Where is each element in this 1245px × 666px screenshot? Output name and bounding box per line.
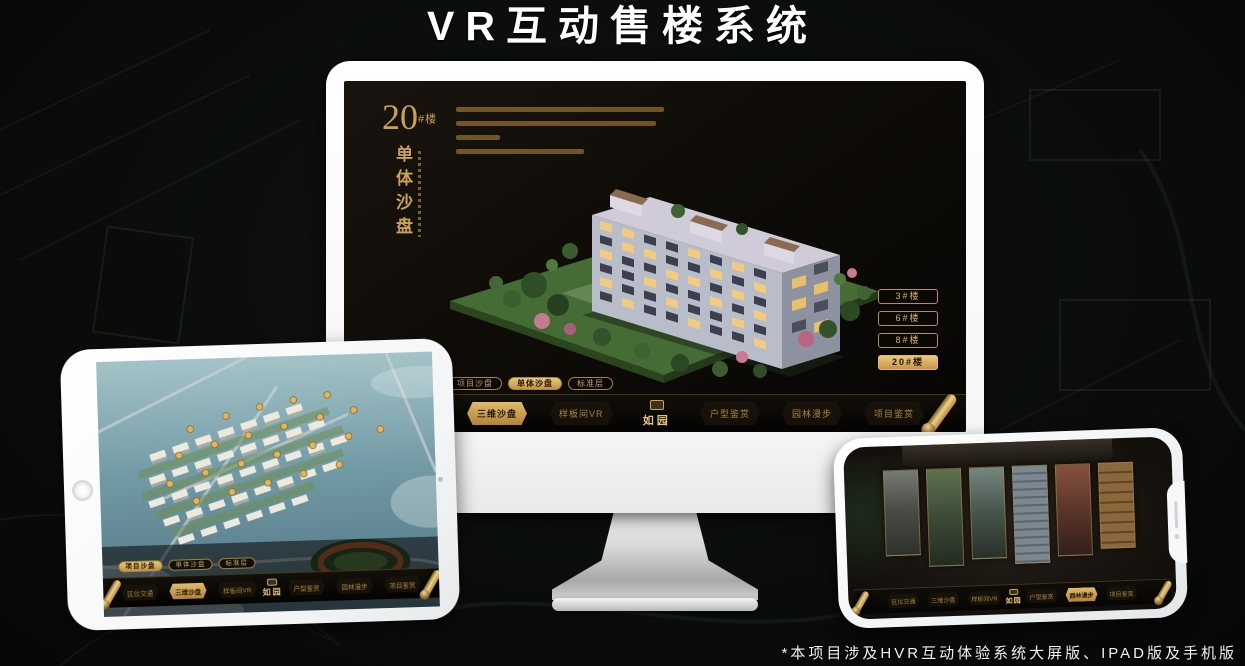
scroll-menu-icon-left[interactable] <box>100 578 122 608</box>
nav-item-3d-sandtable[interactable]: 三维沙盘 <box>167 582 209 599</box>
brand-logo: 如园 <box>643 400 671 428</box>
nav-item-showroom-vr[interactable]: 样板间VR <box>215 581 260 598</box>
nav-item-location[interactable]: 区位交通 <box>119 584 161 601</box>
brand-logo-text: 如园 <box>643 412 671 428</box>
floor-button-list: 3#楼 6#楼 8#楼 20#楼 <box>878 289 938 370</box>
floor-button-8[interactable]: 8#楼 <box>878 333 938 348</box>
nav-item-floorplans[interactable]: 户型鉴赏 <box>1023 588 1059 603</box>
sub-tab-standard-floor[interactable]: 标准层 <box>218 557 255 569</box>
page-title: VR互动售楼系统 <box>0 0 1245 54</box>
scroll-menu-icon-left[interactable] <box>852 590 870 614</box>
floor-subtitle-vertical: 单体沙盘 <box>390 145 415 241</box>
brand-logo-text: 如园 <box>262 586 282 598</box>
floor-title: 20#楼 <box>382 99 437 135</box>
gallery-panel-interior[interactable] <box>883 469 921 556</box>
nav-item-showroom-vr[interactable]: 样板间VR <box>545 402 618 425</box>
floor-suffix: #楼 <box>418 114 437 126</box>
tablet-home-button[interactable] <box>72 479 94 501</box>
nav-item-garden-walk[interactable]: 园林漫步 <box>333 577 375 594</box>
gallery-panel-study[interactable] <box>1098 462 1136 549</box>
promo-poster: VR互动售楼系统 20#楼 单体沙盘 <box>0 0 1245 666</box>
floor-button-3[interactable]: 3#楼 <box>878 289 938 304</box>
nav-item-garden-walk[interactable]: 园林漫步 <box>778 402 846 425</box>
sub-tab-project-sandtable[interactable]: 项目沙盘 <box>448 377 502 390</box>
nav-item-location[interactable]: 区位交通 <box>885 593 921 608</box>
building-render-3d <box>442 133 882 393</box>
gallery-panel-autumn[interactable] <box>1055 463 1093 556</box>
gallery-panel-landscape[interactable] <box>969 466 1007 559</box>
brand-logo: 如园 <box>1005 588 1022 606</box>
brand-emblem-icon <box>1009 588 1018 594</box>
nav-item-project-view[interactable]: 项目鉴赏 <box>1103 586 1139 601</box>
tablet-screen: 项目沙盘 单体沙盘 标准层 区位交通 三维沙盘 样板间VR 如园 户型鉴赏 园林… <box>96 352 440 617</box>
nav-item-garden-walk[interactable]: 园林漫步 <box>1063 587 1099 602</box>
sub-tab-project-sandtable[interactable]: 项目沙盘 <box>118 560 162 572</box>
intro-text-line <box>456 107 664 112</box>
phone-camera-icon <box>1174 534 1179 539</box>
floor-number: 20 <box>382 97 418 137</box>
floor-button-20[interactable]: 20#楼 <box>878 355 938 370</box>
brand-emblem-icon <box>267 579 277 586</box>
phone-screen: 区位交通 三维沙盘 样板间VR 如园 户型鉴赏 园林漫步 项目鉴赏 <box>843 436 1177 619</box>
footnote: *本项目涉及HVR互动体验系统大屏版、IPAD版及手机版 <box>782 642 1237 663</box>
phone-speaker-icon <box>1174 501 1178 528</box>
brand-emblem-icon <box>650 400 664 410</box>
sub-tab-standard-floor[interactable]: 标准层 <box>568 377 613 390</box>
gallery-panel-garden[interactable] <box>926 468 964 567</box>
sub-tab-single-sandtable[interactable]: 单体沙盘 <box>168 559 212 571</box>
nav-item-project-view[interactable]: 项目鉴赏 <box>381 575 423 592</box>
nav-group-right: 户型鉴赏 园林漫步 项目鉴赏 <box>689 402 935 425</box>
tablet-camera-icon <box>438 476 443 481</box>
desktop-sub-tabs: 项目沙盘 单体沙盘 标准层 <box>448 377 613 390</box>
nav-item-project-view[interactable]: 项目鉴赏 <box>860 402 928 425</box>
scroll-menu-icon-right[interactable] <box>420 568 440 598</box>
subtitle-english-vertical <box>418 151 421 237</box>
gallery-panels <box>883 462 1136 569</box>
gallery-panel-building[interactable] <box>1012 465 1050 564</box>
nav-item-3d-sandtable[interactable]: 三维沙盘 <box>925 592 961 607</box>
sub-tab-single-sandtable[interactable]: 单体沙盘 <box>508 377 562 390</box>
nav-item-floorplans[interactable]: 户型鉴赏 <box>285 578 327 595</box>
tablet-device: 项目沙盘 单体沙盘 标准层 区位交通 三维沙盘 样板间VR 如园 户型鉴赏 园林… <box>60 338 461 631</box>
brand-logo: 如园 <box>262 578 283 598</box>
nav-item-floorplans[interactable]: 户型鉴赏 <box>696 402 764 425</box>
nav-item-showroom-vr[interactable]: 样板间VR <box>965 590 1004 605</box>
brand-logo-text: 如园 <box>1006 595 1022 606</box>
intro-text-line <box>456 121 656 126</box>
scroll-menu-icon-right[interactable] <box>1155 580 1173 604</box>
phone-notch <box>1166 481 1187 564</box>
floor-button-6[interactable]: 6#楼 <box>878 311 938 326</box>
monitor-stand-base <box>552 598 758 611</box>
phone-device: 区位交通 三维沙盘 样板间VR 如园 户型鉴赏 园林漫步 项目鉴赏 <box>833 427 1188 629</box>
nav-item-3d-sandtable[interactable]: 三维沙盘 <box>463 402 531 425</box>
